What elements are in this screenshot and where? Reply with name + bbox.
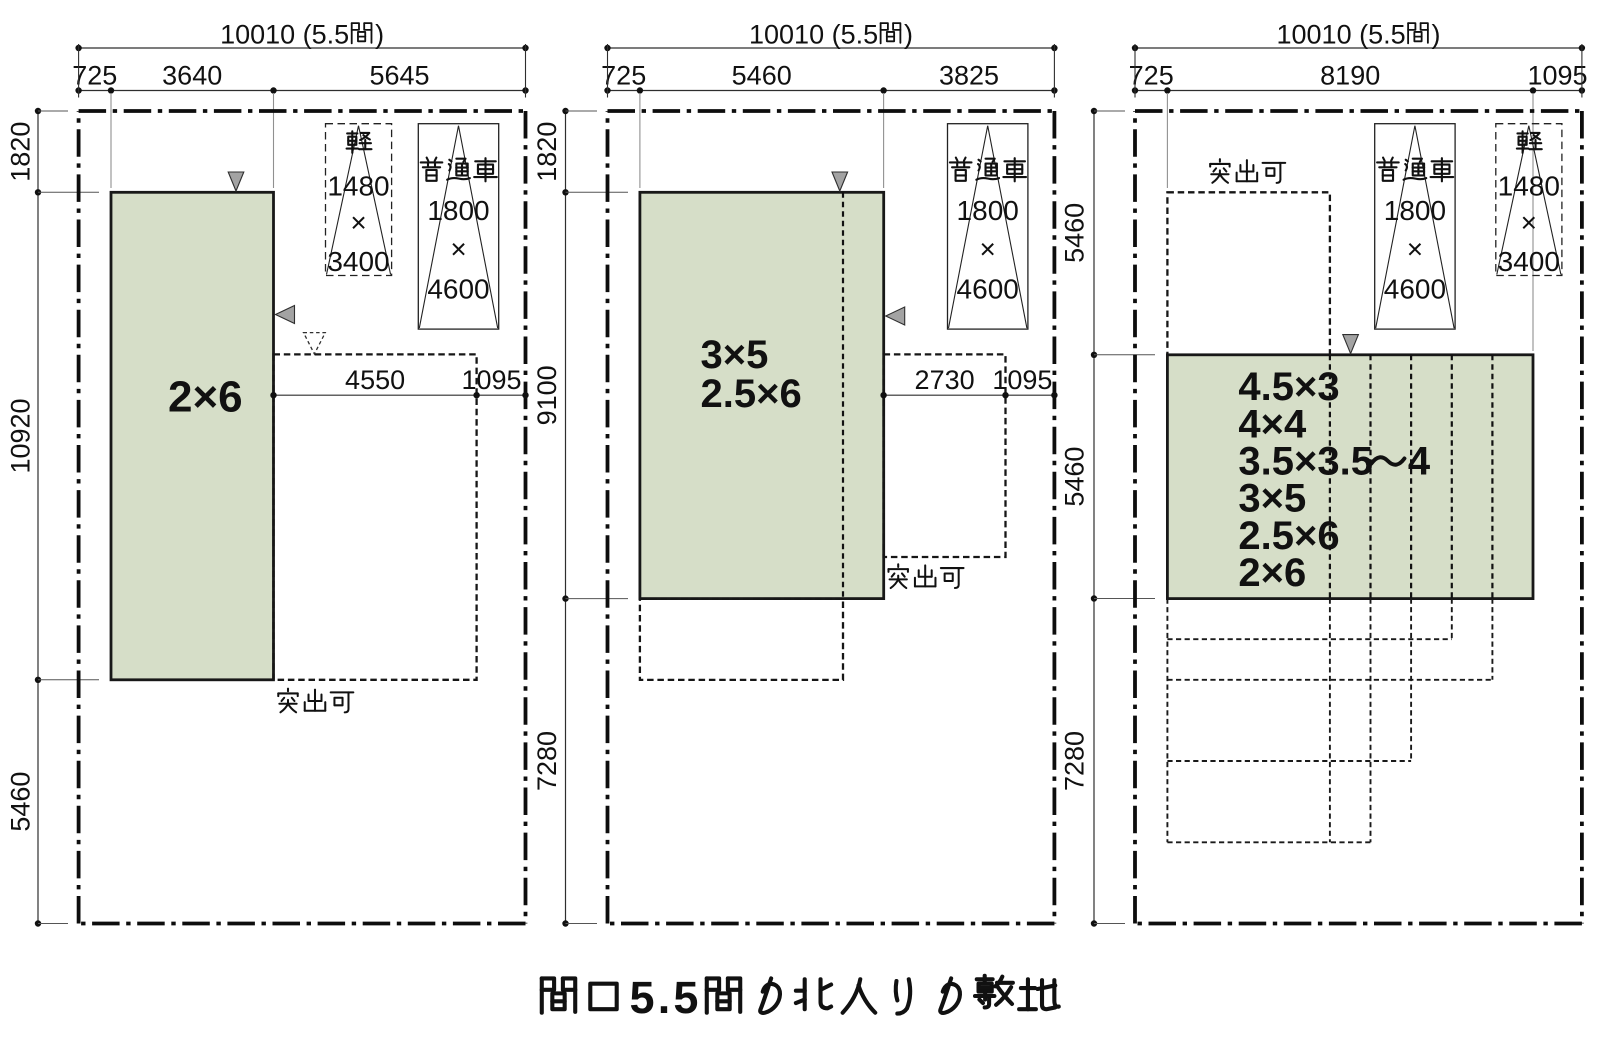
svg-text:5460: 5460 — [732, 61, 792, 91]
svg-text:×: × — [450, 233, 466, 264]
svg-text:1095: 1095 — [1527, 61, 1587, 91]
svg-text:2.5×6: 2.5×6 — [701, 372, 802, 416]
svg-text:4: 4 — [1408, 440, 1431, 484]
svg-text:): ) — [904, 20, 913, 50]
svg-text:10920: 10920 — [6, 398, 36, 473]
svg-text:1480: 1480 — [1498, 171, 1560, 202]
svg-text:3400: 3400 — [1498, 246, 1560, 277]
svg-text:×: × — [1521, 207, 1537, 238]
svg-text:1095: 1095 — [992, 365, 1052, 395]
svg-text:3×5: 3×5 — [701, 333, 769, 377]
svg-text:2×6: 2×6 — [1238, 551, 1306, 595]
svg-text:10010 (5.5: 10010 (5.5 — [220, 20, 349, 50]
svg-text:5460: 5460 — [1060, 203, 1090, 263]
svg-text:1800: 1800 — [1384, 195, 1446, 226]
svg-text:4600: 4600 — [957, 274, 1019, 305]
svg-text:5460: 5460 — [1060, 447, 1090, 507]
svg-text:2730: 2730 — [915, 365, 975, 395]
svg-text:4600: 4600 — [1384, 274, 1446, 305]
svg-text:3640: 3640 — [162, 61, 222, 91]
svg-text:1800: 1800 — [427, 195, 489, 226]
svg-text:10010 (5.5: 10010 (5.5 — [1277, 20, 1406, 50]
svg-text:3825: 3825 — [939, 61, 999, 91]
svg-text:1820: 1820 — [6, 122, 36, 182]
svg-text:1820: 1820 — [532, 122, 562, 182]
svg-text:7280: 7280 — [1060, 731, 1090, 791]
svg-text:1095: 1095 — [461, 365, 521, 395]
svg-text:): ) — [1432, 20, 1441, 50]
svg-text:): ) — [375, 20, 384, 50]
svg-text:1480: 1480 — [327, 171, 389, 202]
svg-text:7280: 7280 — [532, 731, 562, 791]
svg-text:10010 (5.5: 10010 (5.5 — [749, 20, 878, 50]
svg-text:×: × — [350, 207, 366, 238]
svg-text:×: × — [980, 233, 996, 264]
svg-text:×: × — [1407, 233, 1423, 264]
svg-text:9100: 9100 — [532, 365, 562, 425]
svg-text:5.5: 5.5 — [630, 972, 702, 1023]
svg-text:2×6: 2×6 — [168, 373, 243, 422]
svg-text:1800: 1800 — [957, 195, 1019, 226]
svg-text:4600: 4600 — [427, 274, 489, 305]
svg-text:4550: 4550 — [345, 365, 405, 395]
svg-text:8190: 8190 — [1320, 61, 1380, 91]
svg-text:3400: 3400 — [327, 246, 389, 277]
svg-text:5645: 5645 — [369, 61, 429, 91]
svg-text:5460: 5460 — [6, 772, 36, 832]
